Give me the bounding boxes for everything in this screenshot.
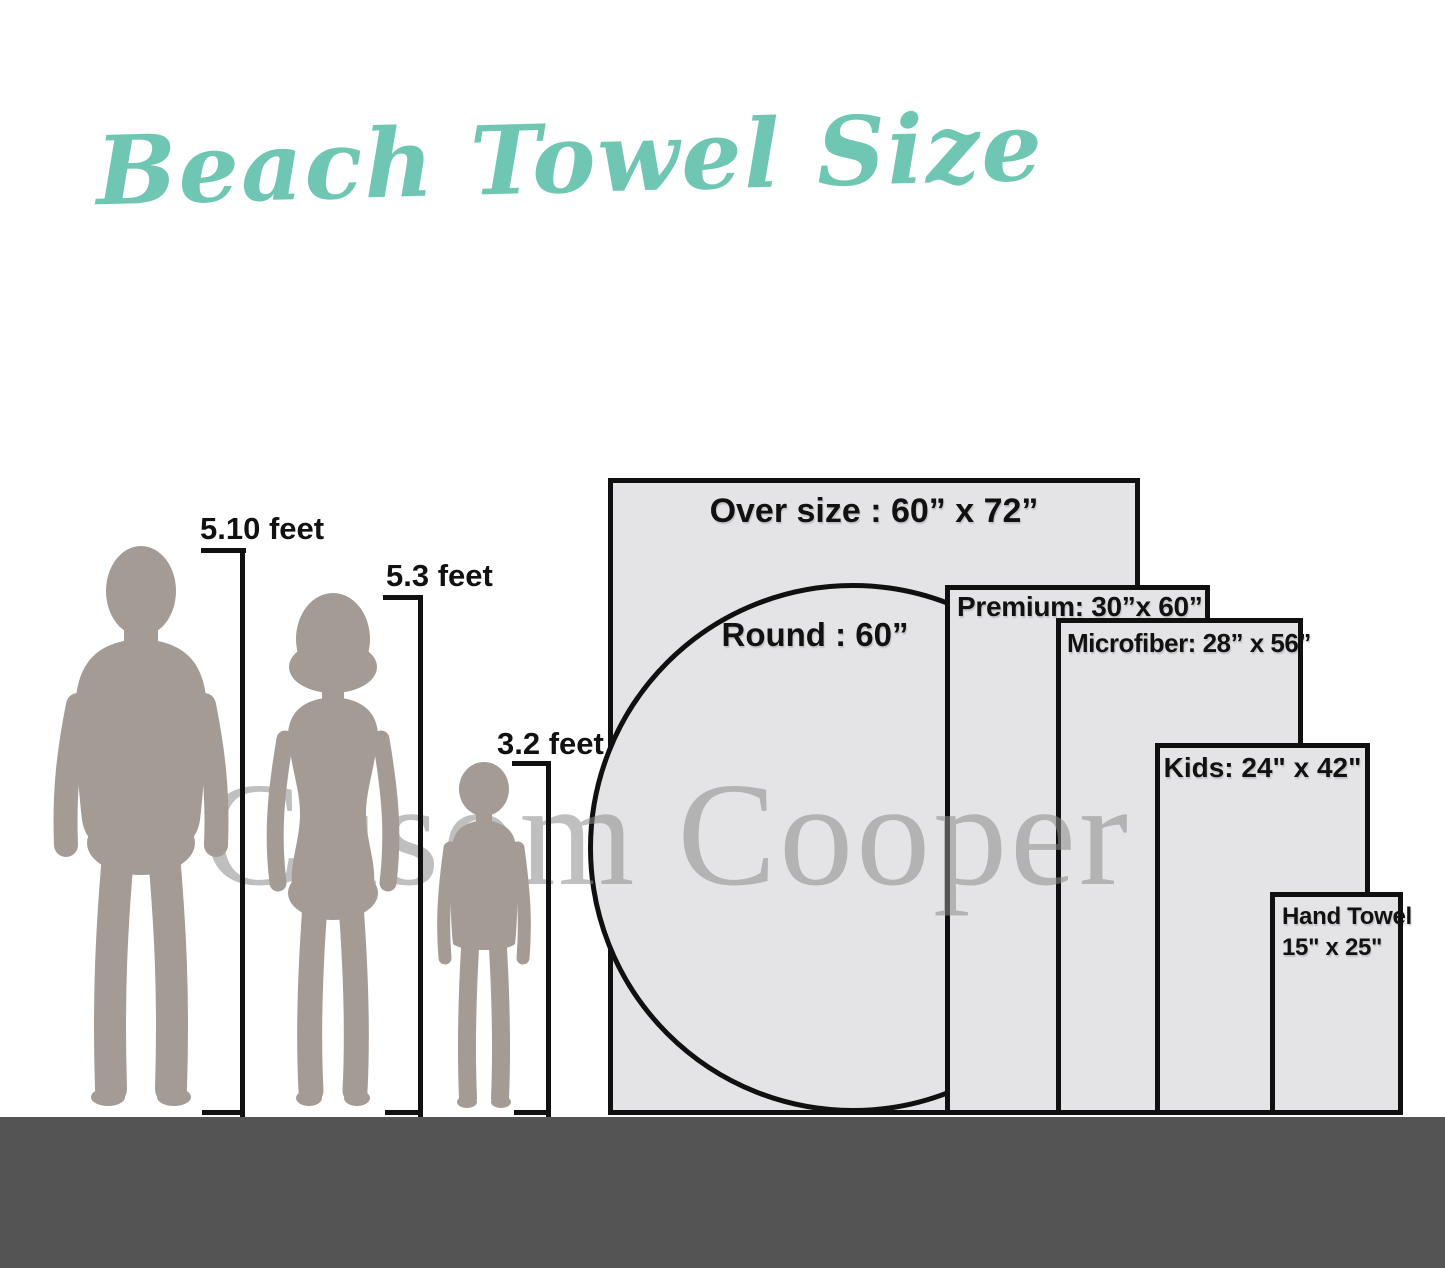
towel-oversize-label: Over size : 60” x 72” (613, 483, 1135, 531)
size-chart-canvas: Beach Towel Size Over size : 60” x 72” R… (0, 0, 1445, 1268)
towel-hand: Hand Towel 15" x 25" (1270, 892, 1403, 1115)
child-height-label: 3.2 feet (497, 728, 604, 759)
woman-height-bracket-line (418, 595, 423, 1117)
child-height-bracket-foot (514, 1110, 551, 1115)
woman-height-bracket-top (383, 595, 423, 600)
towel-hand-label-line2: 15" x 25" (1282, 934, 1382, 961)
man-silhouette (48, 545, 234, 1107)
man-height-label: 5.10 feet (200, 513, 324, 544)
towel-hand-label-line1: Hand Towel (1282, 903, 1412, 930)
towel-hand-label: Hand Towel 15" x 25" (1275, 897, 1398, 963)
child-silhouette (432, 762, 536, 1108)
man-height-bracket-line (240, 548, 245, 1117)
woman-height-label: 5.3 feet (386, 560, 493, 591)
page-title: Beach Towel Size (95, 92, 1045, 228)
woman-height-bracket-foot (385, 1110, 423, 1115)
towel-kids-label: Kids: 24" x 42" (1160, 748, 1365, 784)
towel-microfiber-label: Microfiber: 28” x 56” (1061, 623, 1298, 659)
child-height-bracket-line (546, 761, 551, 1117)
ground-bar (0, 1117, 1445, 1268)
man-height-bracket-foot (202, 1110, 245, 1115)
woman-silhouette (258, 593, 408, 1107)
